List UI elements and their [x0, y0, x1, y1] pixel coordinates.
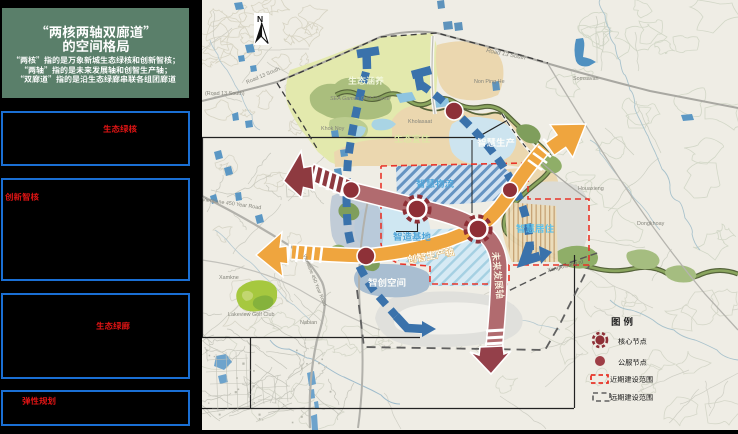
svg-text:Dongkhoay: Dongkhoay	[637, 221, 665, 227]
svg-text:N: N	[257, 14, 263, 24]
svg-text:Khok Noy: Khok Noy	[321, 126, 345, 132]
svg-text:Kholasaat: Kholasaat	[408, 119, 432, 125]
svg-text:Lakeview Golf Club: Lakeview Golf Club	[228, 312, 274, 318]
svg-text:Nabian: Nabian	[300, 320, 317, 326]
svg-text:(Road 13 South): (Road 13 South)	[205, 91, 245, 97]
svg-text:SEA Games Golf Course: SEA Games Golf Course	[330, 96, 390, 102]
svg-text:Houaxieng: Houaxieng	[578, 186, 604, 192]
svg-text:Non Ping He: Non Ping He	[474, 79, 505, 85]
svg-text:Somsavan: Somsavan	[573, 76, 598, 82]
svg-text:Xamkne: Xamkne	[219, 275, 239, 281]
